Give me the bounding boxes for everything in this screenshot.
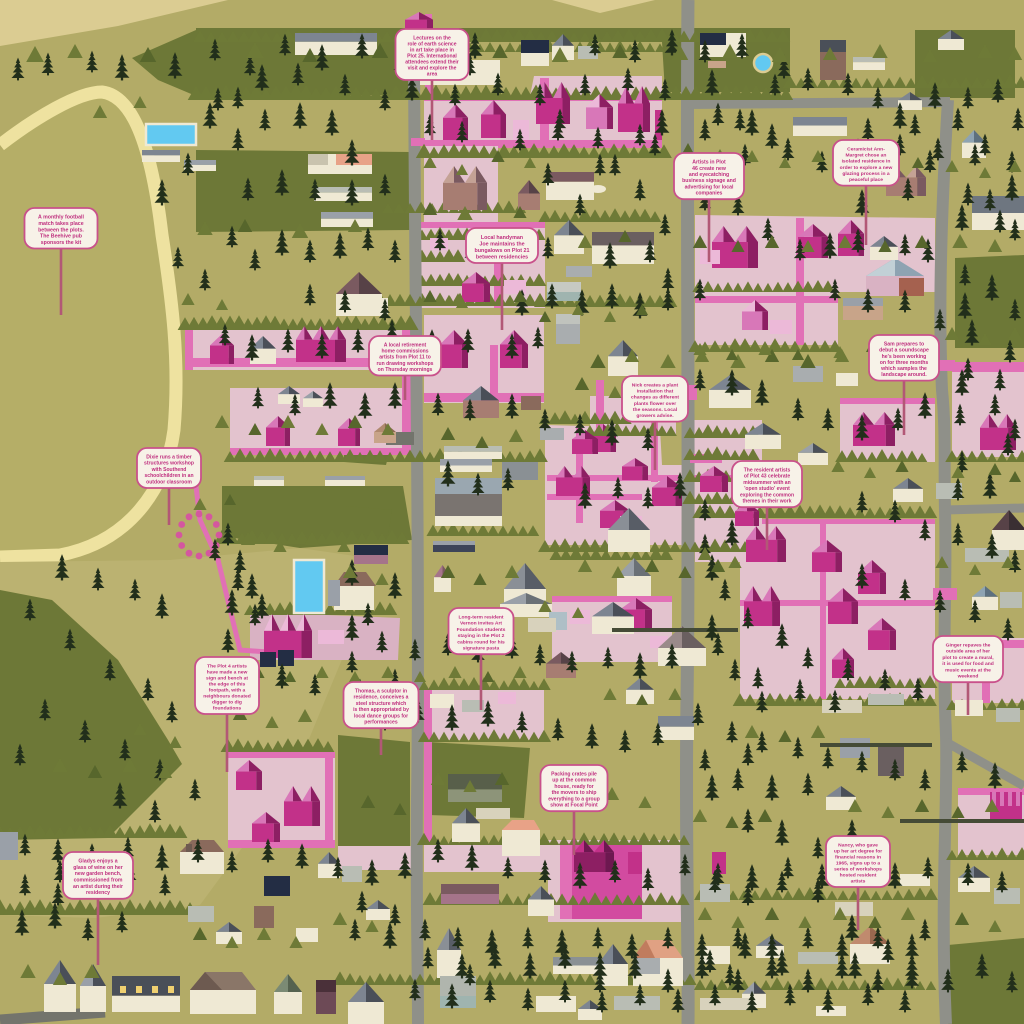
svg-text:artists: artists <box>851 879 866 885</box>
svg-text:of Plot 43 celebrate: of Plot 43 celebrate <box>744 474 790 480</box>
svg-text:Margret chose an: Margret chose an <box>846 153 887 159</box>
svg-text:residence, conceives a: residence, conceives a <box>354 695 409 701</box>
svg-text:digger to dig: digger to dig <box>212 700 242 706</box>
svg-text:and eyecatching: and eyecatching <box>689 172 729 178</box>
svg-text:46 create new: 46 create new <box>692 166 727 172</box>
svg-text:Dixie runs a timber: Dixie runs a timber <box>146 455 191 461</box>
svg-text:growers advise.: growers advise. <box>636 413 674 419</box>
svg-text:show at Focal Point: show at Focal Point <box>550 803 598 809</box>
svg-text:on Thursday mornings: on Thursday mornings <box>378 367 433 373</box>
svg-text:A monthly football: A monthly football <box>38 215 84 221</box>
svg-text:sponsors the kit: sponsors the kit <box>41 240 82 246</box>
svg-text:Packing crates pile: Packing crates pile <box>551 772 597 778</box>
svg-text:Nick creates a plant: Nick creates a plant <box>632 383 679 389</box>
svg-text:house, ready for: house, ready for <box>554 784 593 790</box>
svg-text:series of workshops: series of workshops <box>834 867 882 873</box>
svg-text:foundations: foundations <box>213 706 242 712</box>
svg-text:structures workshop: structures workshop <box>144 461 194 467</box>
svg-text:signature pasta: signature pasta <box>463 646 500 652</box>
svg-text:order to explore a new: order to explore a new <box>840 165 893 171</box>
svg-text:installation that: installation that <box>637 389 674 395</box>
svg-text:area: area <box>427 72 438 78</box>
svg-text:outside area of her: outside area of her <box>946 649 990 655</box>
svg-text:neighbours donated: neighbours donated <box>203 694 250 700</box>
svg-text:schoolchildren in an: schoolchildren in an <box>144 473 193 479</box>
svg-text:Local handyman: Local handyman <box>481 235 523 241</box>
svg-text:up her art degree for: up her art degree for <box>834 849 882 855</box>
svg-text:exploring the common: exploring the common <box>740 492 794 498</box>
svg-text:Vernon invites Art: Vernon invites Art <box>460 621 502 627</box>
svg-text:glass of wine on her: glass of wine on her <box>73 865 122 871</box>
svg-text:plot to create a mural,: plot to create a mural, <box>942 655 994 661</box>
svg-text:themes in their work: themes in their work <box>742 499 791 505</box>
svg-text:staying in the Plot 2: staying in the Plot 2 <box>458 633 505 639</box>
svg-text:with Southend: with Southend <box>151 467 187 473</box>
svg-text:debut a soundscape: debut a soundscape <box>879 348 929 354</box>
svg-text:plants flower over: plants flower over <box>634 401 676 407</box>
svg-text:glazing process in a: glazing process in a <box>842 171 889 177</box>
svg-text:sign and bench at: sign and bench at <box>206 676 248 682</box>
svg-text:A local retirement: A local retirement <box>384 343 427 349</box>
svg-text:between the plots.: between the plots. <box>38 227 84 233</box>
svg-text:run drawing workshops: run drawing workshops <box>377 361 434 367</box>
svg-text:Ginger repaves the: Ginger repaves the <box>946 643 991 649</box>
svg-text:on for three months: on for three months <box>880 360 929 366</box>
svg-text:'open studio' event: 'open studio' event <box>744 486 790 492</box>
svg-text:companies: companies <box>696 191 723 197</box>
svg-text:an artist during their: an artist during their <box>73 884 123 890</box>
svg-text:Gladys enjoys a: Gladys enjoys a <box>78 859 117 865</box>
svg-text:Ceramicist Ann-: Ceramicist Ann- <box>847 147 885 153</box>
svg-text:Joe maintains the: Joe maintains the <box>479 241 524 247</box>
svg-text:peaceful place: peaceful place <box>849 177 883 183</box>
svg-text:Thomas, a sculptor in: Thomas, a sculptor in <box>355 689 407 695</box>
svg-text:he's been working: he's been working <box>882 354 927 360</box>
svg-text:home commissions: home commissions <box>381 349 428 355</box>
svg-text:footpath, with a: footpath, with a <box>209 688 246 694</box>
svg-text:Foundation students: Foundation students <box>457 627 506 633</box>
svg-text:between residencies: between residencies <box>476 254 528 260</box>
svg-text:business signage and: business signage and <box>682 178 736 184</box>
svg-text:music events at the: music events at the <box>945 667 991 673</box>
svg-text:residency: residency <box>86 890 110 896</box>
svg-text:1965, signs up to a: 1965, signs up to a <box>836 861 880 867</box>
svg-text:financial reasons in: financial reasons in <box>835 855 881 861</box>
svg-text:The resident artists: The resident artists <box>744 468 791 474</box>
svg-text:match takes place: match takes place <box>38 221 83 227</box>
svg-text:local dance groups for: local dance groups for <box>354 713 408 719</box>
svg-text:landscape around.: landscape around. <box>881 372 927 378</box>
svg-text:the seasons. Local: the seasons. Local <box>633 407 678 413</box>
svg-text:commissioned from: commissioned from <box>74 878 123 884</box>
svg-text:have made a new: have made a new <box>207 670 248 676</box>
svg-text:steel structure which: steel structure which <box>356 701 406 707</box>
svg-text:midsummer with an: midsummer with an <box>743 480 790 486</box>
svg-text:Nancy, who gave: Nancy, who gave <box>838 843 878 849</box>
svg-text:Sam prepares to: Sam prepares to <box>884 342 924 348</box>
svg-text:Long-term resident: Long-term resident <box>459 615 504 621</box>
svg-text:bungalows on Plot 21: bungalows on Plot 21 <box>475 248 530 254</box>
svg-text:hosted resident: hosted resident <box>840 873 877 879</box>
svg-text:is then appropriated by: is then appropriated by <box>353 707 409 713</box>
svg-text:the movers to ship: the movers to ship <box>552 790 597 796</box>
svg-text:The Plot 4 artists: The Plot 4 artists <box>207 664 247 670</box>
svg-text:which samples the: which samples the <box>880 366 927 372</box>
svg-text:new garden bench,: new garden bench, <box>75 871 122 877</box>
svg-text:The Beehive pub: The Beehive pub <box>40 234 82 240</box>
svg-text:everything to a group: everything to a group <box>548 796 600 802</box>
svg-text:it is used for food and: it is used for food and <box>942 661 994 667</box>
svg-text:Artists in Plot: Artists in Plot <box>692 160 726 166</box>
svg-text:up at the common: up at the common <box>552 778 595 784</box>
svg-text:cabins round for his: cabins round for his <box>457 639 505 645</box>
svg-text:isolated residence in: isolated residence in <box>842 159 891 165</box>
svg-text:artists from Plot 11 to: artists from Plot 11 to <box>379 355 431 361</box>
svg-text:performances: performances <box>364 720 398 726</box>
svg-text:outdoor classroom: outdoor classroom <box>146 479 192 485</box>
svg-text:advertising for local: advertising for local <box>685 184 734 190</box>
svg-text:weekend: weekend <box>957 674 979 680</box>
svg-text:changes as different: changes as different <box>631 395 679 401</box>
svg-text:the edge of this: the edge of this <box>209 682 246 688</box>
